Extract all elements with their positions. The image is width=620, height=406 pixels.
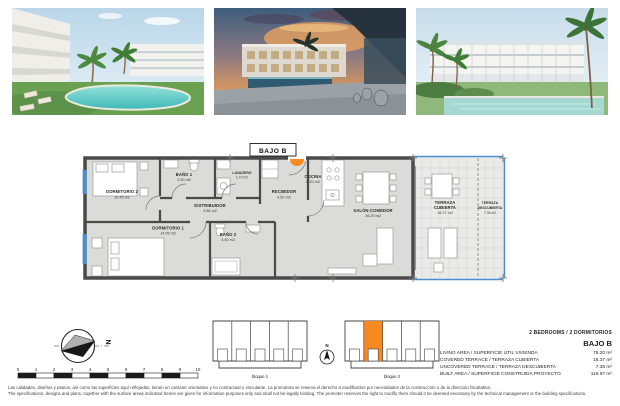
- room-label: DORMITORIO 2: [106, 189, 138, 194]
- area-specs: 2 BEDROOMS / 2 DORMITORIOS BAJO B LIVING…: [440, 330, 612, 378]
- north-label: N: [104, 339, 111, 344]
- spec-row: UNCOVERED TERRACE / TERRAZA DESCUBIERTA …: [440, 364, 612, 371]
- site-block-1: bloque 1: [213, 321, 307, 379]
- svg-text:1: 1: [35, 367, 38, 372]
- disclaimer-es: Las calidades, diseños y planos, así com…: [8, 386, 614, 391]
- svg-text:3: 3: [71, 367, 74, 372]
- spec-row: BUILT AREA / SUPERFICIE CONSTRUIDA PROYE…: [440, 371, 612, 378]
- scale-segments: [18, 373, 198, 378]
- site-north-icon: N: [320, 343, 334, 364]
- spec-label: UNCOVERED TERRACE / TERRAZA DESCUBIERTA: [440, 364, 556, 371]
- room-label: LAVADERO: [232, 171, 252, 175]
- room-area: 3.56 m2: [203, 209, 217, 213]
- spec-label: COVERED TERRACE / TERRAZA CUBIERTA: [440, 357, 539, 364]
- svg-text:9: 9: [179, 367, 182, 372]
- room-area: 4.50 m2: [277, 196, 291, 200]
- block-2-label: bloque 2: [384, 374, 401, 379]
- room-area: 8.20 m2: [306, 180, 320, 184]
- background-building: [130, 44, 204, 76]
- svg-text:6: 6: [125, 367, 128, 372]
- room-area: 4.40 m2: [221, 238, 235, 242]
- room-label: TERRAZA: [482, 201, 499, 205]
- room-label: CUBIERTA: [434, 205, 456, 210]
- room-area: 26.20 m2: [365, 214, 381, 218]
- floor-plan: BAJO B DORMITORIO 2 10.45 m2 DORMITORIO …: [60, 136, 560, 296]
- room-label: COCINA: [304, 174, 321, 179]
- room-area: 10.45 m2: [114, 196, 130, 200]
- room-label: BAÑO 1: [176, 172, 193, 177]
- spec-value: 76.20 m²: [593, 350, 612, 357]
- scale-bar: 0 1 2 3 4 5 6 7 8 9 10: [12, 364, 212, 382]
- block-1-label: bloque 1: [252, 374, 269, 379]
- svg-text:4: 4: [89, 367, 92, 372]
- photo-garden-pool: [12, 8, 204, 115]
- brochure-page: BAJO B DORMITORIO 2 10.45 m2 DORMITORIO …: [0, 0, 620, 406]
- scale-numbers: 0 1 2 3 4 5 6 7 8 9 10: [17, 367, 201, 372]
- spec-row: LIVING AREA / SUPERFICIE ÚTIL VIVIENDA 7…: [440, 350, 612, 357]
- svg-text:0: 0: [17, 367, 20, 372]
- apartment-building: [430, 42, 584, 82]
- spec-label: LIVING AREA / SUPERFICIE ÚTIL VIVIENDA: [440, 350, 538, 357]
- svg-text:8: 8: [161, 367, 164, 372]
- disclaimer-en: The specifications, designs and plans, t…: [8, 392, 614, 397]
- bedrooms-line: 2 BEDROOMS / 2 DORMITORIOS: [440, 330, 612, 336]
- room-label: DESCUBIERTA: [478, 206, 503, 210]
- room-area: 14.05 m2: [160, 232, 176, 236]
- pool: [444, 98, 604, 115]
- svg-text:2: 2: [53, 367, 56, 372]
- glass-wall: [364, 38, 406, 84]
- pool: [66, 85, 190, 109]
- legal-disclaimer: Las calidades, diseños y planos, así com…: [8, 386, 614, 399]
- site-north-label: N: [325, 343, 328, 348]
- room-label: DISTRIBUIDOR: [194, 203, 225, 208]
- photo-strip: [12, 8, 608, 115]
- room-area: 3.90 m2: [177, 178, 191, 182]
- spec-row: COVERED TERRACE / TERRAZA CUBIERTA 16.37…: [440, 357, 612, 364]
- spec-label: BUILT AREA / SUPERFICIE CONSTRUIDA PROYE…: [440, 371, 561, 378]
- unit-tag: BAJO B: [259, 148, 287, 155]
- spec-value: 16.37 m²: [593, 357, 612, 364]
- specs-unit-name: BAJO B: [440, 339, 612, 348]
- room-label: RECIBIDOR: [272, 189, 296, 194]
- apartment-building: [242, 44, 346, 77]
- spec-value: 119.97 m²: [591, 371, 612, 378]
- room-area: 7.35 m2: [484, 211, 496, 215]
- photo-sunset-terrace: [214, 8, 406, 115]
- spec-value: 7.35 m²: [596, 364, 612, 371]
- site-key: bloque 1 N bloque 2: [205, 318, 450, 385]
- svg-text:7: 7: [143, 367, 146, 372]
- site-block-2: bloque 2: [345, 321, 439, 379]
- room-label: SALÓN-COMEDOR: [353, 208, 392, 213]
- room-area: 16.37 m2: [437, 211, 453, 215]
- room-label: BAÑO 2: [220, 232, 237, 237]
- photo-facade-pool: [416, 8, 608, 115]
- svg-text:10: 10: [196, 367, 201, 372]
- svg-text:5: 5: [107, 367, 110, 372]
- room-area: 1.70 m2: [236, 176, 248, 180]
- room-label: DORMITORIO 1: [152, 226, 184, 231]
